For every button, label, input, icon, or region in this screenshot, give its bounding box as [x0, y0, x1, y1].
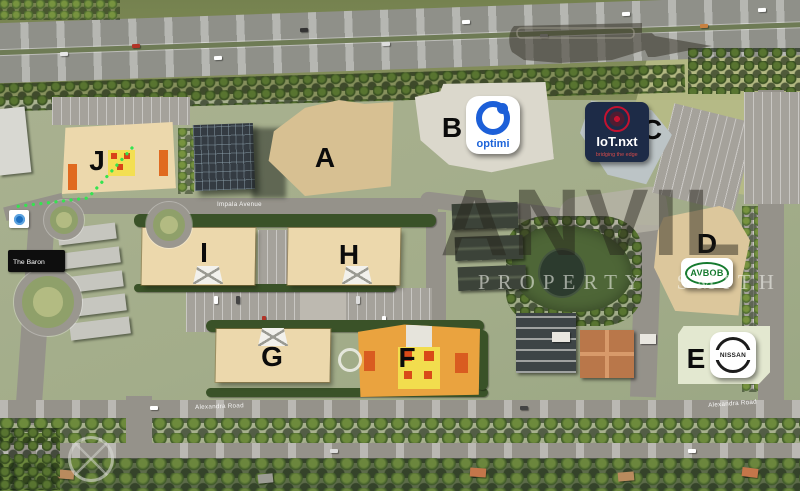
car	[622, 12, 630, 16]
avbob-ellipse-icon: AVBOB	[685, 262, 729, 285]
dotted-route	[0, 140, 150, 220]
nissan-circle-icon: NISSAN	[715, 337, 751, 373]
j-orange-strip	[159, 150, 168, 176]
orange-roof-building	[580, 330, 634, 378]
pond	[538, 248, 586, 298]
optimi-logo: optimi	[466, 96, 520, 154]
house-roof	[258, 473, 274, 484]
baron-sign: The Baron	[8, 250, 65, 272]
car	[236, 296, 240, 304]
nissan-logo: NISSAN	[710, 332, 756, 378]
f-red-strip	[455, 353, 468, 373]
building-f	[358, 323, 480, 397]
car	[758, 8, 766, 12]
canopy-building	[516, 313, 576, 373]
iotnxt-logo: IoT.nxt bridging the edge	[585, 102, 649, 162]
car	[356, 296, 360, 304]
existing-dark-row	[455, 235, 524, 261]
trees-top-right	[688, 48, 800, 94]
solar-roof-building	[193, 123, 255, 191]
car	[300, 28, 308, 32]
building-a-label: A	[315, 144, 335, 172]
existing-dark-row	[458, 265, 527, 291]
building-d-label: D	[697, 230, 717, 258]
car	[132, 44, 140, 48]
alexandra-road-north	[0, 400, 800, 418]
hedge	[134, 284, 396, 292]
avbob-logo: AVBOB	[681, 258, 733, 288]
building-h-label: H	[339, 241, 359, 269]
roundabout-west	[14, 268, 82, 336]
parking-i-h-gap	[258, 230, 288, 288]
nissan-wordmark: NISSAN	[714, 350, 752, 360]
car	[330, 449, 338, 453]
building-b-label: B	[442, 114, 462, 142]
trees-top-left-corner	[0, 0, 120, 20]
building-i-label: I	[200, 239, 208, 267]
building-j-label: J	[89, 147, 105, 175]
existing-dark-row	[452, 202, 519, 230]
baron-label: The Baron	[13, 259, 45, 266]
iotnxt-globe-icon	[604, 106, 630, 132]
trees-j-east	[178, 128, 194, 194]
car	[214, 296, 218, 304]
alexandra-median-trees	[0, 418, 800, 443]
trees-southwest	[0, 428, 60, 490]
parking-north-j	[52, 97, 190, 125]
car	[520, 406, 528, 410]
site-plan-map: The Baron Impala Avenue Alexandra Road A…	[0, 0, 800, 491]
alexandra-road-south	[0, 443, 800, 459]
crane-pad	[193, 266, 223, 284]
avbob-wordmark: AVBOB	[690, 268, 723, 278]
iotnxt-tagline: bridging the edge	[596, 151, 638, 157]
house-roof	[742, 467, 759, 478]
car	[462, 20, 470, 24]
car	[540, 34, 548, 38]
car	[688, 449, 696, 453]
iotnxt-wordmark: IoT.nxt	[596, 134, 637, 149]
car	[700, 24, 708, 28]
optimi-ring-icon	[476, 101, 510, 135]
parking-top-right	[744, 92, 800, 204]
white-canopy	[640, 334, 656, 344]
building-g-label: G	[261, 343, 283, 371]
impala-avenue-label: Impala Avenue	[217, 201, 262, 208]
fountain-circle	[338, 348, 362, 372]
blue-transit-dot-icon	[14, 214, 25, 225]
house-roof	[470, 467, 487, 477]
f-red-strip	[364, 351, 375, 371]
suburb-trees	[0, 458, 800, 491]
car	[60, 52, 68, 56]
white-canopy	[552, 332, 570, 342]
optimi-wordmark: optimi	[477, 138, 510, 150]
building-e-label: E	[687, 345, 706, 373]
car	[150, 406, 158, 410]
house-roof	[618, 471, 635, 481]
water-tower-ring	[68, 436, 114, 482]
roundabout-impala-2	[146, 202, 192, 248]
building-f-label: F	[398, 344, 415, 372]
transit-stop-sign	[9, 210, 29, 228]
car	[382, 42, 390, 46]
car	[214, 56, 222, 60]
